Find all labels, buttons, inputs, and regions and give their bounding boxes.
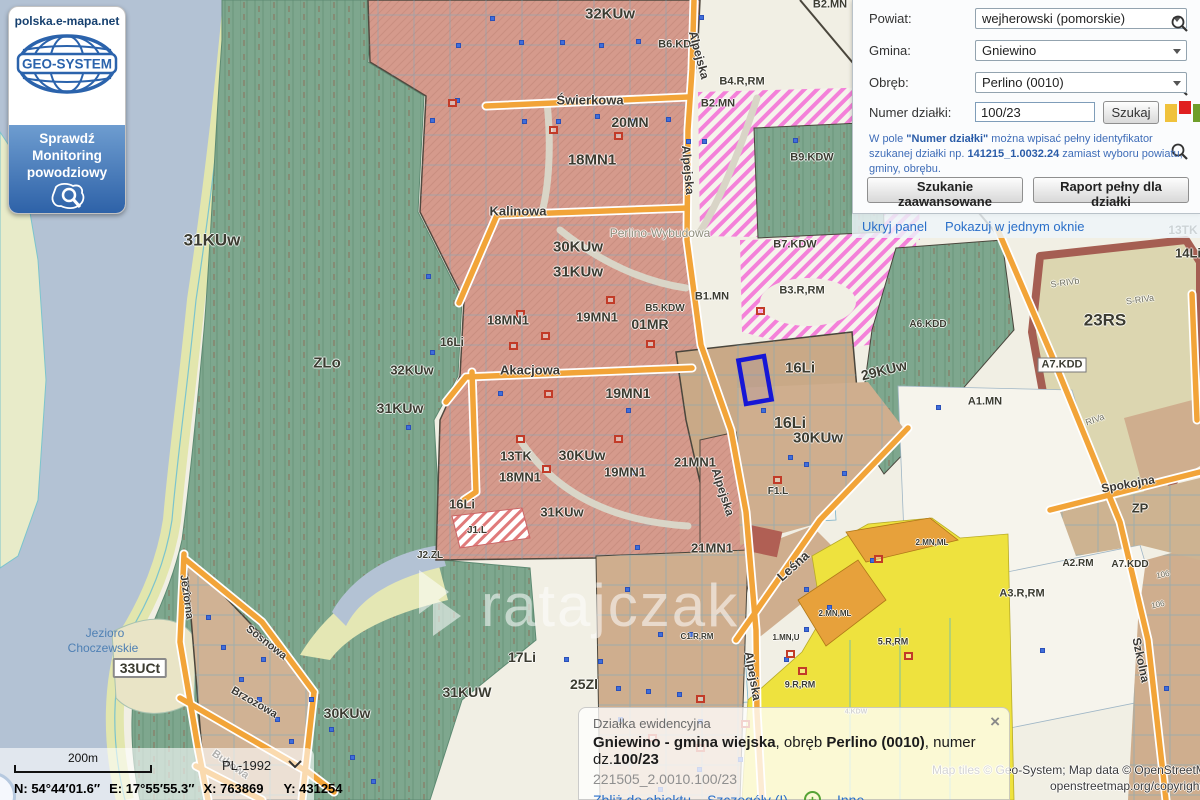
chevron-down-icon bbox=[1173, 49, 1181, 54]
parcel-hint-text: W pole "Numer działki" można wpisać pełn… bbox=[869, 132, 1191, 177]
plus-circle-icon[interactable]: + bbox=[804, 791, 821, 800]
details-link[interactable]: Szczegóły (I) bbox=[707, 792, 788, 800]
coord-x: X: 763869 bbox=[203, 781, 263, 796]
obreb-label: Obręb: bbox=[869, 75, 909, 90]
powiat-search-icon[interactable] bbox=[1170, 14, 1190, 34]
obreb-select[interactable]: Perlino (0010) bbox=[975, 72, 1187, 93]
other-link[interactable]: Inne bbox=[837, 792, 864, 800]
parcel-number-label: Numer działki: bbox=[869, 105, 951, 120]
coord-y: Y: 431254 bbox=[283, 781, 342, 796]
hide-panel-link[interactable]: Ukryj panel bbox=[862, 219, 927, 234]
status-bar: 200m PL-1992 N: 54°44′01.6″E: 17°55′55.3… bbox=[0, 748, 314, 800]
geo-system-globe-icon: GEO-SYSTEM bbox=[15, 33, 119, 95]
parcel-actions: Zbliż do obiektu Szczegóły (I) + Inne bbox=[593, 791, 995, 800]
szukaj-button[interactable]: Szukaj bbox=[1103, 101, 1159, 124]
search-panel-buttons: Szukanie zaawansowane Raport pełny dla d… bbox=[867, 177, 1189, 203]
row-powiat: Powiat: wejherowski (pomorskie) bbox=[869, 7, 1192, 29]
logo-card[interactable]: polska.e-mapa.net GEO-SYSTEM Sprawdź Mon… bbox=[8, 6, 126, 214]
chevron-down-icon[interactable] bbox=[288, 760, 302, 769]
parcel-id: 221505_2.0010.100/23 bbox=[593, 771, 995, 787]
search-panel: Powiat: wejherowski (pomorskie) Gmina: G… bbox=[852, 0, 1200, 214]
flood-monitoring-button[interactable]: Sprawdź Monitoring powodziowy bbox=[9, 125, 125, 213]
app-window: 32KUwB6.KDL20MN18MN1B2.MNB4.R,RMB2.MNB9.… bbox=[0, 0, 1200, 800]
gmina-select[interactable]: Gniewino bbox=[975, 40, 1187, 61]
flood-map-magnifier-icon bbox=[48, 182, 86, 212]
row-gmina: Gmina: Gniewino bbox=[869, 39, 1192, 61]
selected-parcel-highlight[interactable] bbox=[738, 356, 771, 404]
zoom-to-object-link[interactable]: Zbliż do obiektu bbox=[593, 792, 691, 800]
site-title: polska.e-mapa.net bbox=[9, 14, 125, 28]
parcel-info-panel: × Działka ewidencyjna Gniewino - gmina w… bbox=[578, 707, 1010, 800]
gmina-label: Gmina: bbox=[869, 43, 911, 58]
single-window-link[interactable]: Pokazuj w jednym oknie bbox=[945, 219, 1084, 234]
scale-label: 200m bbox=[14, 751, 152, 765]
scale-bar bbox=[14, 765, 152, 773]
crs-selector[interactable]: PL-1992 bbox=[222, 758, 271, 773]
geo-system-label: GEO-SYSTEM bbox=[22, 57, 112, 72]
coord-n: N: 54°44′01.6″ bbox=[14, 781, 100, 796]
full-report-button[interactable]: Raport pełny dla działki bbox=[1033, 177, 1189, 203]
info-panel-title: Działka ewidencyjna bbox=[593, 716, 995, 731]
powiat-select[interactable]: wejherowski (pomorskie) bbox=[975, 8, 1187, 29]
coordinates-readout: N: 54°44′01.6″E: 17°55′55.3″X: 763869Y: … bbox=[14, 781, 352, 796]
advanced-search-button[interactable]: Szukanie zaawansowane bbox=[867, 177, 1023, 203]
parcel-description: Gniewino - gmina wiejska, obręb Perlino … bbox=[593, 734, 995, 768]
chevron-down-icon bbox=[1173, 81, 1181, 86]
row-parcel-number: Numer działki: Szukaj bbox=[869, 101, 1192, 123]
close-icon[interactable]: × bbox=[990, 712, 1000, 732]
panel-links-bar: Ukryj panel Pokazuj w jednym oknie bbox=[852, 214, 1200, 238]
parcel-number-input[interactable] bbox=[975, 102, 1095, 122]
row-obreb: Obręb: Perlino (0010) bbox=[869, 71, 1192, 93]
coord-e: E: 17°55′55.3″ bbox=[109, 781, 194, 796]
powiat-label: Powiat: bbox=[869, 11, 912, 26]
map-legend-icon[interactable] bbox=[1165, 101, 1200, 123]
